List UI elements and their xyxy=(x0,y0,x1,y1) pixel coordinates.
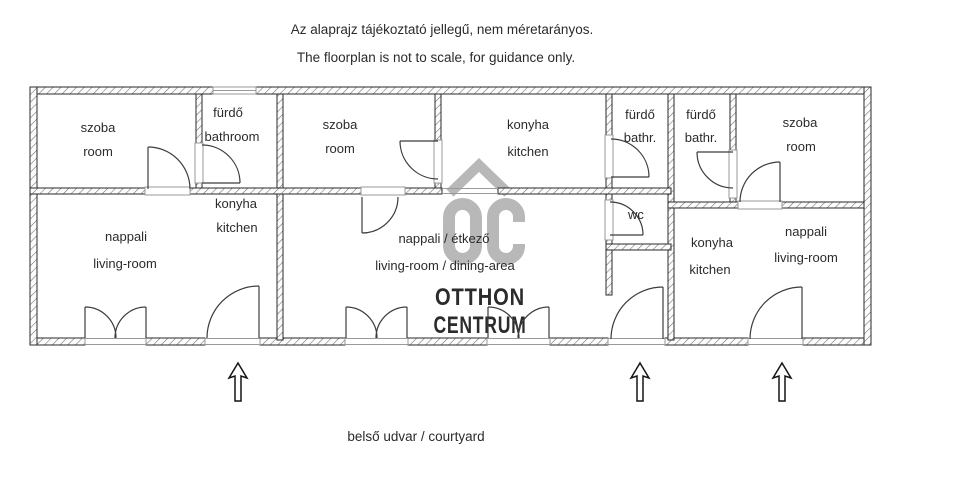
disclaimer-en: The floorplan is not to scale, for guida… xyxy=(297,50,575,65)
room-label-wc: wc xyxy=(627,207,644,222)
room-label-kitchen-en: kitchen xyxy=(507,144,548,159)
room-label-kitchen-hu: konyha xyxy=(215,196,258,211)
room-label-bathroom-en: bathr. xyxy=(624,130,657,145)
entrance-door-swing xyxy=(750,287,802,339)
wall xyxy=(146,338,205,345)
room-label-bathroom-en: bathr. xyxy=(685,130,718,145)
wall xyxy=(435,94,441,140)
wall xyxy=(803,338,870,345)
double-door-swing xyxy=(346,307,407,338)
wall xyxy=(730,94,736,150)
disclaimer-hu: Az alaprajz tájékoztató jellegű, nem mér… xyxy=(291,22,593,37)
room-label-kitchen-hu: konyha xyxy=(691,235,734,250)
wall xyxy=(668,202,738,208)
door-opening xyxy=(605,135,613,178)
door-opening xyxy=(729,150,737,198)
watermark-brand-line1: OTTHON xyxy=(435,284,525,311)
room-label-kitchen-hu: konyha xyxy=(507,117,550,132)
room-label-bedroom-hu: szoba xyxy=(81,120,116,135)
door-swing xyxy=(202,145,240,183)
room-label-bedroom-en: room xyxy=(325,141,355,156)
room-label-kitchen-en: kitchen xyxy=(216,220,257,235)
door-swing xyxy=(740,162,780,202)
wall xyxy=(550,338,608,345)
room-label-living-dining-hu: nappali / étkező xyxy=(398,231,489,246)
wall xyxy=(30,87,37,345)
wall xyxy=(408,338,487,345)
logo-letter-c-gap xyxy=(508,222,528,244)
door-sill xyxy=(85,339,146,345)
floorplan-canvas: Az alaprajz tájékoztató jellegű, nem mér… xyxy=(0,0,965,500)
door-opening xyxy=(195,143,203,183)
door-swing xyxy=(697,152,733,188)
entrance-door-swing xyxy=(207,286,259,338)
entrance-door-swing xyxy=(611,287,663,339)
room-label-bedroom-en: room xyxy=(786,139,816,154)
door-sill xyxy=(748,339,803,345)
room-label-living-hu: nappali xyxy=(105,229,147,244)
watermark-brand-line2: CENTRUM xyxy=(434,312,527,339)
wall xyxy=(256,87,870,94)
door-opening xyxy=(361,187,405,195)
room-label-bedroom-en: room xyxy=(83,144,113,159)
wall xyxy=(606,244,671,250)
up-arrow-icon xyxy=(229,363,247,401)
wall xyxy=(606,94,612,135)
wall xyxy=(668,94,674,340)
wall xyxy=(498,188,671,194)
room-label-bathroom-hu: fürdő xyxy=(686,107,716,122)
wall xyxy=(864,87,871,345)
wall xyxy=(665,338,748,345)
room-label-bedroom-hu: szoba xyxy=(783,115,818,130)
door-sill xyxy=(345,339,408,345)
room-label-living-hu: nappali xyxy=(785,224,827,239)
door-swing xyxy=(148,147,190,189)
room-label-living-dining-en: living-room / dining-area xyxy=(375,258,515,273)
wall xyxy=(405,188,442,194)
double-door-swing xyxy=(85,307,146,338)
door-swing xyxy=(362,197,398,233)
door-sill xyxy=(487,339,550,345)
entrance-arrows xyxy=(229,363,791,401)
wall xyxy=(782,202,864,208)
wall xyxy=(30,87,213,94)
courtyard-caption: belső udvar / courtyard xyxy=(347,429,484,444)
wall xyxy=(30,188,145,194)
door-opening xyxy=(605,200,613,240)
wall xyxy=(260,338,345,345)
room-label-bathroom-en: bathroom xyxy=(205,129,260,144)
room-label-kitchen-en: kitchen xyxy=(689,262,730,277)
wall xyxy=(30,338,85,345)
door-opening xyxy=(738,201,782,209)
door-sill xyxy=(608,339,665,345)
door-swing xyxy=(400,141,438,179)
room-label-bedroom-hu: szoba xyxy=(323,117,358,132)
up-arrow-icon xyxy=(773,363,791,401)
door-opening xyxy=(434,140,442,183)
room-label-bathroom-hu: fürdő xyxy=(625,107,655,122)
door-sill xyxy=(205,339,260,345)
up-arrow-icon xyxy=(631,363,649,401)
room-label-bathroom-hu: fürdő xyxy=(213,105,243,120)
room-label-living-en: living-room xyxy=(774,250,838,265)
door-opening xyxy=(145,187,190,195)
room-label-living-en: living-room xyxy=(93,256,157,271)
wall xyxy=(277,94,283,340)
wall xyxy=(190,188,361,194)
floorplan-page: Az alaprajz tájékoztató jellegű, nem mér… xyxy=(0,0,965,500)
wall xyxy=(196,94,202,143)
